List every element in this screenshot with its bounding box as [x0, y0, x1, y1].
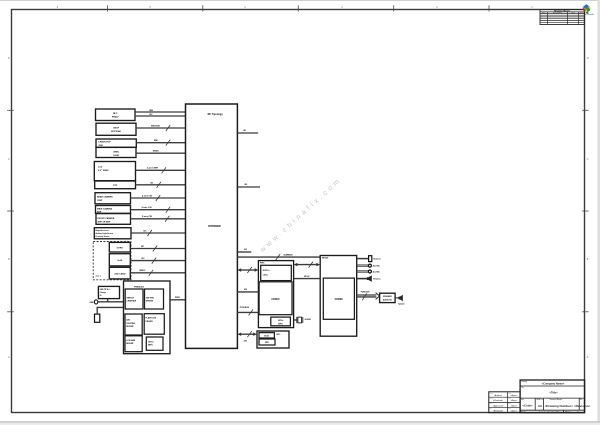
svg-text:MIPI: MIPI: [265, 342, 269, 344]
svg-text:DRIVER: DRIVER: [146, 301, 154, 303]
svg-text:GPIOs: GPIOs: [278, 320, 284, 322]
svg-text:DRIVER: DRIVER: [126, 326, 134, 328]
svg-text:LCD BIAS: LCD BIAS: [126, 339, 136, 342]
svg-text:26.00M: 26.00M: [305, 319, 311, 321]
svg-text:FRONT CAMERA: FRONT CAMERA: [98, 217, 115, 220]
svg-text:PMIC: PMIC: [260, 263, 265, 265]
svg-text:C: C: [587, 158, 589, 161]
svg-text:<Code>: <Code>: [522, 404, 533, 408]
svg-text:Check: Check: [490, 398, 494, 400]
svg-text:MCP9080: MCP9080: [111, 131, 122, 133]
svg-text:PMU6323: PMU6323: [134, 286, 145, 288]
svg-text:NFC: NFC: [113, 113, 118, 115]
svg-text:DCDC: DCDC: [264, 336, 270, 338]
svg-text:Rev: Rev: [542, 12, 545, 14]
svg-text:PDM BUS: PDM BUS: [361, 292, 370, 294]
svg-text:<Approved>: <Approved>: [492, 404, 504, 407]
svg-text:CTP: CTP: [113, 185, 118, 187]
svg-text:DRIVER: DRIVER: [126, 343, 134, 345]
svg-text:chinafix: chinafix: [587, 14, 594, 16]
svg-text:<Author>: <Author>: [494, 394, 503, 397]
svg-text:DRIVER: DRIVER: [146, 321, 154, 323]
svg-text:2-wire CSI: 2-wire CSI: [141, 206, 151, 209]
svg-text:MT6582W: MT6582W: [208, 224, 221, 228]
svg-text:Date: Date: [571, 11, 575, 14]
svg-text:Description: Description: [553, 11, 562, 14]
svg-text:<Date>: <Date>: [511, 394, 518, 397]
svg-text:MSDC: MSDC: [139, 270, 146, 272]
svg-text:LCD: LCD: [98, 166, 103, 168]
svg-text:PCM BUS: PCM BUS: [240, 307, 250, 309]
svg-text:Receiver: Receiver: [373, 279, 381, 281]
svg-text:D: D: [587, 57, 589, 60]
svg-text:3 in 1: 3 in 1: [96, 276, 102, 278]
svg-text:Speaker: Speaker: [398, 304, 405, 306]
svg-text:Size: Size: [521, 399, 524, 401]
svg-text:USB T/P D+/-: USB T/P D+/-: [100, 289, 111, 291]
svg-text:I2C: I2C: [143, 230, 147, 232]
svg-text:LED: LED: [126, 320, 130, 322]
svg-text:FLASH LED: FLASH LED: [146, 317, 157, 320]
svg-text:VIB TING: VIB TING: [146, 297, 155, 299]
svg-text:EMI BUS: EMI BUS: [151, 126, 160, 128]
svg-text:eMCP: eMCP: [113, 127, 120, 129]
svg-text:Sheet: Sheet: [565, 410, 571, 413]
svg-text:eMMC: eMMC: [113, 152, 120, 154]
svg-text:LIGHTING: LIGHTING: [126, 323, 136, 325]
svg-text:LDOs: LDOs: [263, 274, 269, 276]
svg-text:RF Topology: RF Topology: [208, 113, 224, 116]
svg-text:PN547: PN547: [112, 115, 119, 118]
svg-text:Company: Company: [521, 381, 527, 383]
svg-text:<Company Name>: <Company Name>: [542, 381, 565, 385]
svg-text:<Date>: <Date>: [511, 410, 518, 413]
svg-text:CODEC: CODEC: [335, 299, 344, 301]
svg-text:CODEC: CODEC: [271, 299, 280, 301]
svg-text:SLIMBUS: SLIMBUS: [283, 255, 293, 257]
svg-text:4-wire MIPI: 4-wire MIPI: [147, 167, 158, 170]
svg-text:Aux MIC: Aux MIC: [373, 265, 381, 268]
svg-text:EMI: EMI: [154, 140, 158, 142]
svg-text:MSDC: MSDC: [153, 151, 160, 153]
svg-text:13MP: 13MP: [97, 200, 103, 202]
svg-text:<Drawing Number> <Revision>: <Drawing Number> <Revision>: [545, 404, 591, 408]
svg-text:5.5" 1080P: 5.5" 1080P: [98, 170, 109, 172]
svg-text:G+M: G+M: [117, 260, 122, 262]
svg-text:I2C: I2C: [141, 246, 145, 248]
svg-text:Appr: Appr: [580, 11, 584, 14]
svg-text:REAR CAMERA: REAR CAMERA: [97, 195, 113, 198]
svg-text:PMIC: PMIC: [175, 297, 181, 299]
svg-text:Proximity Sensor: Proximity Sensor: [96, 235, 110, 238]
svg-text:I2C: I2C: [149, 114, 153, 116]
svg-text:2-wire CSI: 2-wire CSI: [142, 215, 152, 218]
svg-text:I2C: I2C: [150, 182, 154, 184]
svg-text:GYRO: GYRO: [117, 247, 124, 249]
svg-text:LPDDR POP: LPDDR POP: [99, 142, 112, 144]
svg-text:Date:: Date:: [521, 410, 527, 413]
svg-text:UIM: UIM: [149, 110, 153, 112]
svg-text:<Checked>: <Checked>: [493, 399, 504, 402]
svg-text:Aux MIC: Aux MIC: [373, 271, 381, 274]
svg-text:CHARGER: CHARGER: [127, 300, 137, 303]
svg-text:SPEAKER: SPEAKER: [383, 295, 392, 298]
svg-text:MIPIs: MIPIs: [148, 345, 153, 347]
svg-text:Ambient Light Sensor: Ambient Light Sensor: [96, 232, 114, 235]
svg-text:GPIOs: GPIOs: [148, 341, 154, 343]
svg-text:uSD CARD: uSD CARD: [114, 272, 126, 275]
svg-text:MIPIs: MIPIs: [278, 323, 283, 325]
svg-text:Magnetic sensor: Magnetic sensor: [96, 229, 110, 232]
svg-text:USB: USB: [89, 302, 94, 304]
svg-text:SWITCH: SWITCH: [127, 297, 135, 299]
svg-text:<Date>: <Date>: [511, 404, 518, 407]
svg-text:I2C: I2C: [141, 258, 145, 260]
svg-text:4-wire CSI: 4-wire CSI: [142, 194, 152, 197]
svg-text:Rev: Rev: [580, 399, 583, 401]
svg-text:16GB: 16GB: [113, 155, 119, 157]
svg-text:AUDIO PA: AUDIO PA: [383, 298, 392, 301]
svg-text:Charger: Charger: [100, 292, 107, 294]
svg-text:MCLK: MCLK: [304, 276, 310, 278]
svg-text:MT6329: MT6329: [322, 258, 328, 260]
svg-text:<Date>: <Date>: [511, 399, 518, 402]
svg-text:<Title>: <Title>: [549, 391, 558, 395]
svg-text:A3: A3: [538, 404, 542, 408]
svg-text:2GB: 2GB: [99, 145, 104, 147]
svg-text:Tuesday, May 06, 2014: Tuesday, May 06, 2014: [539, 410, 560, 413]
svg-text:C: C: [8, 158, 10, 161]
svg-text:<Released>: <Released>: [493, 410, 504, 413]
svg-text:Headset: Headset: [373, 258, 381, 261]
svg-text:5MP OR 8MP: 5MP OR 8MP: [98, 221, 111, 223]
svg-text:D: D: [8, 57, 10, 60]
svg-text:DCDCs: DCDCs: [263, 270, 271, 272]
svg-text:of: of: [577, 411, 579, 413]
svg-text:Drawn: Drawn: [490, 392, 494, 394]
svg-text:MAIN CAMERA: MAIN CAMERA: [97, 207, 113, 210]
